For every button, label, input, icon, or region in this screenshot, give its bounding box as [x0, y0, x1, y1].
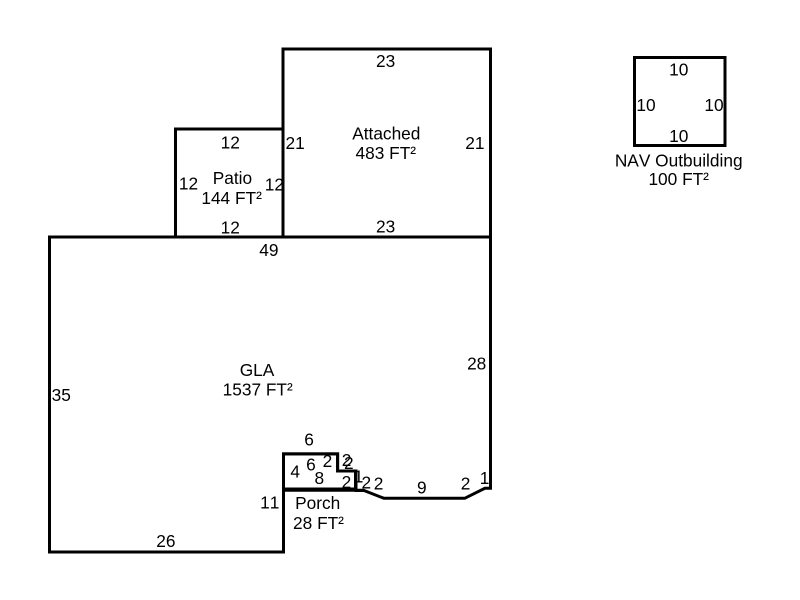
svg-text:11: 11 — [260, 493, 279, 513]
svg-text:12: 12 — [265, 174, 284, 194]
svg-text:1: 1 — [480, 468, 490, 488]
svg-text:2: 2 — [361, 473, 371, 493]
svg-text:6: 6 — [304, 430, 314, 450]
svg-text:GLA: GLA — [240, 360, 275, 380]
svg-text:9: 9 — [417, 477, 427, 497]
svg-text:483 FT²: 483 FT² — [356, 143, 417, 163]
svg-text:26: 26 — [156, 531, 175, 551]
svg-text:28 FT²: 28 FT² — [293, 513, 344, 533]
svg-text:2: 2 — [344, 453, 354, 473]
svg-text:49: 49 — [259, 240, 278, 260]
svg-text:4: 4 — [290, 462, 300, 482]
svg-text:Patio: Patio — [213, 168, 252, 188]
svg-text:2: 2 — [342, 472, 352, 492]
svg-text:10: 10 — [704, 95, 723, 115]
svg-text:28: 28 — [467, 354, 486, 374]
svg-text:21: 21 — [465, 133, 484, 153]
svg-text:1537 FT²: 1537 FT² — [223, 380, 293, 400]
svg-text:12: 12 — [179, 174, 198, 194]
svg-text:23: 23 — [376, 216, 395, 236]
svg-text:NAV Outbuilding: NAV Outbuilding — [615, 150, 743, 170]
svg-text:21: 21 — [286, 133, 305, 153]
svg-text:10: 10 — [669, 59, 688, 79]
svg-text:23: 23 — [376, 51, 395, 71]
svg-text:10: 10 — [636, 95, 655, 115]
svg-text:35: 35 — [52, 385, 71, 405]
svg-text:12: 12 — [221, 133, 240, 153]
svg-text:2: 2 — [374, 474, 384, 494]
svg-text:10: 10 — [669, 126, 688, 146]
svg-text:Porch: Porch — [295, 493, 340, 513]
svg-text:100 FT²: 100 FT² — [648, 169, 709, 189]
svg-text:144 FT²: 144 FT² — [201, 188, 262, 208]
svg-text:8: 8 — [314, 468, 324, 488]
svg-text:2: 2 — [461, 473, 471, 493]
svg-text:Attached: Attached — [352, 124, 420, 144]
svg-text:12: 12 — [221, 218, 240, 238]
